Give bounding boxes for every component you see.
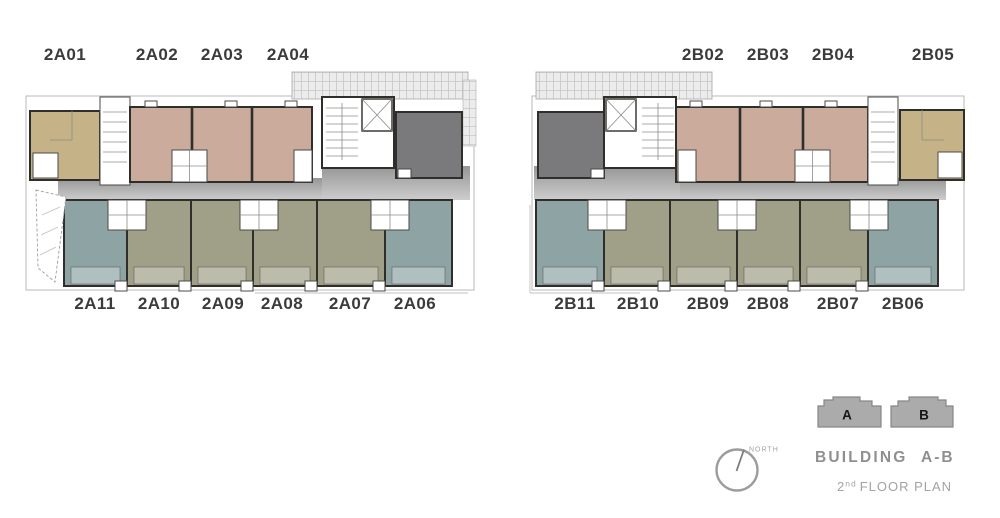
unit-dark-a	[396, 112, 462, 178]
label-2A07: 2A07	[329, 294, 371, 314]
label-2B03: 2B03	[747, 45, 789, 65]
bath-2A04	[294, 150, 312, 182]
floor-text: FLOOR PLAN	[860, 479, 952, 494]
unit-2A01-bath	[33, 153, 58, 178]
label-2A06: 2A06	[394, 294, 436, 314]
building-b-icon-letter: B	[919, 408, 929, 423]
label-2B07: 2B07	[817, 294, 859, 314]
label-2B08: 2B08	[747, 294, 789, 314]
unit-dark-a-entry	[398, 169, 411, 178]
unit-2B05-bath	[938, 152, 962, 178]
roof-hatch-b	[536, 72, 712, 99]
building-b-icon: B	[891, 397, 953, 427]
label-2A11: 2A11	[74, 294, 115, 314]
edge-hatch-a	[463, 80, 476, 146]
label-2B05: 2B05	[912, 45, 954, 65]
label-2A03: 2A03	[201, 45, 243, 65]
label-2A01: 2A01	[44, 45, 86, 65]
north-compass: NORTH	[717, 447, 779, 491]
legend-building-range: A-B	[921, 449, 955, 466]
legend-building-word: BUILDING	[815, 449, 908, 466]
building-b-plan	[525, 65, 980, 300]
label-2B10: 2B10	[617, 294, 659, 314]
label-2A04: 2A04	[267, 45, 309, 65]
units-2B02-2B04	[676, 107, 868, 182]
unit-dark-b	[538, 112, 604, 178]
stair-shaft-b-right	[868, 97, 898, 185]
building-a-icon: A	[818, 397, 881, 427]
label-2B04: 2B04	[812, 45, 854, 65]
label-2A08: 2A08	[261, 294, 303, 314]
label-2A02: 2A02	[136, 45, 178, 65]
label-2B09: 2B09	[687, 294, 729, 314]
north-label: NORTH	[749, 447, 779, 454]
stair-shaft-a-left	[100, 97, 130, 185]
label-2A10: 2A10	[138, 294, 180, 314]
label-2B11: 2B11	[554, 294, 595, 314]
floor-number: 2	[837, 479, 845, 494]
building-a-icon-letter: A	[842, 408, 852, 423]
roof-hatch-a	[292, 72, 468, 99]
unit-dark-b-entry	[591, 169, 604, 178]
label-2B02: 2B02	[682, 45, 724, 65]
bath-2B02	[678, 150, 696, 182]
label-2B06: 2B06	[882, 294, 924, 314]
floor-ordinal: nd	[845, 479, 856, 489]
legend-floor-line: 2ndFLOOR PLAN	[837, 479, 952, 495]
label-2A09: 2A09	[202, 294, 244, 314]
units-2A02-2A04	[130, 107, 312, 182]
floor-plan-page: 2A01 2A02 2A03 2A04 2B02 2B03 2B04 2B05 …	[0, 0, 1000, 518]
building-a-plan	[15, 65, 485, 300]
compass-needle-icon	[737, 450, 745, 472]
legend: NORTH A B BUILDING A-B 2ndFLOOR PLAN	[700, 388, 975, 503]
